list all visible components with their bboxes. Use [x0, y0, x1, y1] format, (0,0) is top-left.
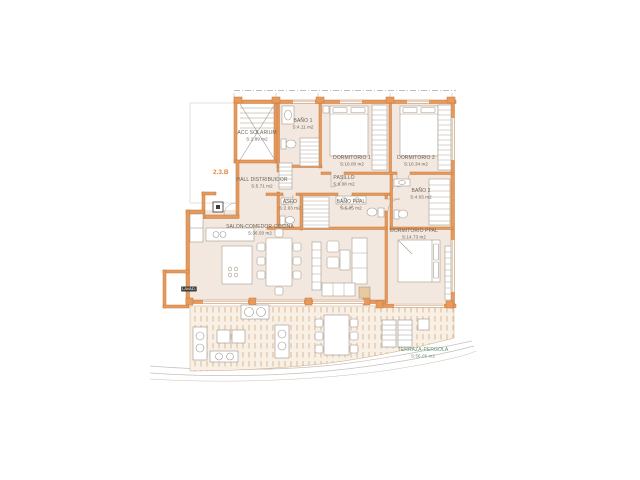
- label-dormitorio-2: DORMITORIO 2 S:10.34 m2: [397, 155, 435, 167]
- label-dormitorio-1: DORMITORIO 1 S:10.00 m2: [333, 155, 371, 167]
- room-name: DORMITORIO 1: [333, 155, 371, 161]
- room-area: S:36.50 m2: [226, 230, 294, 236]
- floor-plan-drawing: [0, 0, 640, 480]
- label-acc-solarium: ACC SOLARIUM S:1.89 m2: [237, 130, 276, 142]
- entry-marker: [213, 202, 223, 212]
- room-name: DORMITORIO PPAL: [390, 228, 438, 234]
- room-area: S:5.05 m2: [337, 205, 366, 211]
- room-area: S:10.00 m2: [333, 161, 371, 167]
- room-name: ASEO: [283, 199, 297, 205]
- room-name: SALON-COMEDOR-COCINA: [226, 224, 294, 230]
- label-bano-ppal: BAÑO PPAL S:5.05 m2: [337, 199, 366, 211]
- label-terraza-pergola: TERRAZA-PERGOLA S:56.05 m2: [398, 347, 449, 359]
- label-aseo: ASEO S:2.03 m2: [279, 199, 300, 211]
- room-area: S:10.34 m2: [397, 161, 435, 167]
- laundry-label: LAVAD.: [181, 287, 197, 292]
- room-name: DORMITORIO 2: [397, 155, 435, 161]
- label-salon-comedor-cocina: SALON-COMEDOR-COCINA S:36.50 m2: [226, 224, 294, 236]
- room-area: S:5.71 m2: [236, 183, 287, 189]
- room-area: S:9.08 m2: [333, 181, 354, 187]
- label-bano-2: BAÑO 2 S:4.03 m2: [410, 188, 431, 200]
- room-name: HALL DISTRIBUIDOR: [236, 177, 287, 183]
- room-area: S:14.73 m2: [390, 234, 438, 240]
- unit-number-label: 2.3.B: [213, 168, 229, 176]
- label-dormitorio-ppal: DORMITORIO PPAL S:14.73 m2: [390, 228, 438, 240]
- boundary-line: [234, 91, 456, 99]
- room-name: BAÑO PPAL: [337, 199, 366, 205]
- label-hall-distribuidor: HALL DISTRIBUIDOR S:5.71 m2: [236, 177, 287, 189]
- room-name: ACC SOLARIUM: [237, 130, 276, 136]
- label-pasillo: PASILLO S:9.08 m2: [333, 175, 354, 187]
- room-area: S:4.03 m2: [410, 194, 431, 200]
- room-area: S:1.89 m2: [237, 136, 276, 142]
- room-name: BAÑO 2: [412, 188, 431, 194]
- room-area: S:2.03 m2: [279, 205, 300, 211]
- room-name: BAÑO 1: [294, 118, 313, 124]
- room-area: S:56.05 m2: [398, 353, 449, 359]
- label-bano-1: BAÑO 1 S:4.11 m2: [292, 118, 313, 130]
- floor-plan-page: ACC SOLARIUM S:1.89 m2 BAÑO 1 S:4.11 m2 …: [0, 0, 640, 480]
- roof-ledge: [190, 103, 236, 203]
- room-area: S:4.11 m2: [292, 124, 313, 130]
- room-name: PASILLO: [333, 175, 354, 181]
- room-name: TERRAZA-PERGOLA: [398, 347, 449, 353]
